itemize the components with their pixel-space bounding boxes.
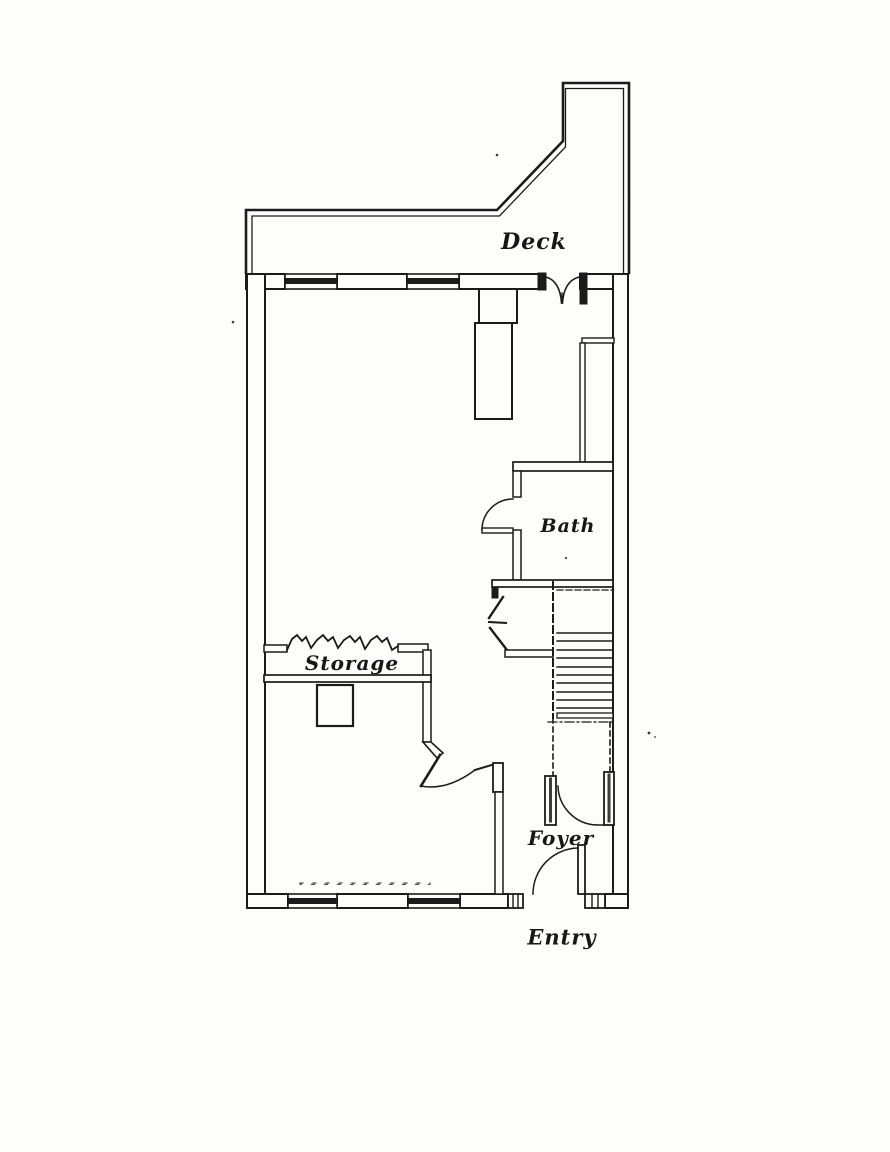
door-jamb-block-left — [508, 894, 523, 908]
window-bottom-left — [288, 894, 337, 908]
support-column — [317, 685, 353, 726]
deck-outline — [246, 83, 629, 273]
kitchen-counter — [475, 289, 517, 419]
room-label-bath: Bath — [541, 515, 596, 537]
deck-door — [538, 273, 587, 304]
window-top-left — [285, 274, 337, 289]
bath-door — [482, 499, 513, 533]
entry-door — [533, 845, 585, 894]
floor-plan-drawing — [0, 0, 890, 1152]
window-bottom-right — [408, 894, 460, 908]
exterior-wall-right — [613, 274, 628, 908]
foyer-partition — [421, 742, 503, 894]
stair-door — [545, 772, 614, 825]
closet-wall — [580, 338, 614, 462]
bifold-closet — [489, 587, 553, 657]
room-label-entry: Entry — [527, 925, 596, 950]
window-top-right — [407, 274, 459, 289]
room-label-deck: Deck — [501, 229, 567, 255]
stairs — [548, 582, 614, 775]
exterior-wall-left — [247, 274, 265, 908]
storage-shelf-squiggle — [287, 635, 398, 650]
door-jamb-block-right — [585, 894, 605, 908]
floor-plan-page: Deck Bath Storage Foyer Entry — [0, 0, 890, 1152]
room-label-foyer: Foyer — [528, 826, 594, 850]
room-label-storage: Storage — [305, 651, 399, 675]
